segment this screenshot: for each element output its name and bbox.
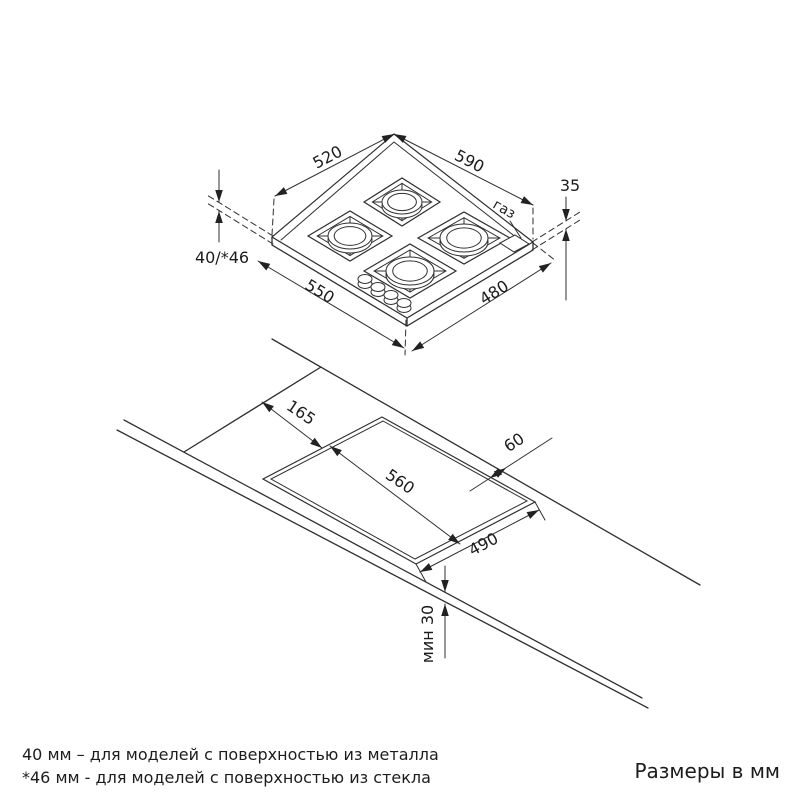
dimension-arrowhead [521, 196, 533, 205]
control-knob [384, 291, 398, 305]
dim-label-35: 35 [560, 176, 580, 195]
dimension-arrowhead [215, 211, 223, 223]
ext-left-top [207, 195, 273, 236]
control-knob [397, 299, 411, 313]
knob-top [358, 275, 372, 284]
burner-ring-inner [393, 261, 428, 281]
dimension-arrowhead [527, 510, 539, 519]
ext-480-right [533, 243, 556, 261]
dimension-arrowhead [539, 263, 551, 273]
burner-ring-inner [388, 193, 417, 210]
ext-right-top [532, 212, 580, 242]
installation-diagram: 520 590 550 480 35 40/*46 газ 165 560 60… [0, 0, 800, 800]
ext-right-bottom [532, 220, 580, 250]
control-knob [371, 283, 385, 297]
ext-left-bottom [207, 203, 273, 244]
dimension-arrowhead [441, 604, 449, 616]
worktop-view [117, 339, 700, 708]
knob-top [371, 283, 385, 292]
control-knob [358, 275, 372, 289]
dimension-arrowhead [412, 341, 424, 351]
dim-label-165: 165 [283, 396, 319, 429]
knob-top [397, 299, 411, 308]
dim-label-40-46: 40/*46 [195, 248, 249, 267]
burner-ring-inner [447, 228, 482, 248]
dim-label-550: 550 [302, 275, 338, 307]
units-note: Размеры в мм [634, 759, 780, 783]
ext-520 [272, 199, 274, 235]
footnotes: 40 мм – для моделей с поверхностью из ме… [22, 745, 780, 787]
dim-label-60: 60 [500, 429, 527, 456]
dimension-arrowhead [392, 339, 404, 348]
footnote-metal: 40 мм – для моделей с поверхностью из ме… [22, 745, 439, 764]
knob-top [384, 291, 398, 300]
dimension-arrowhead [562, 229, 570, 241]
dimension-arrowhead [310, 438, 322, 448]
dim-label-min30: мин 30 [418, 605, 437, 663]
dimension-arrowhead [262, 402, 274, 412]
burner-ring-inner [334, 227, 366, 246]
footnote-glass: *46 мм - для моделей с поверхностью из с… [22, 768, 431, 787]
dimension-arrowhead [258, 261, 270, 270]
dim-label-520: 520 [310, 142, 346, 173]
dimension-arrowhead [420, 563, 432, 572]
dim-label-590: 590 [452, 146, 488, 177]
dimension-arrowhead [215, 190, 223, 202]
dimension-arrowhead [275, 187, 287, 196]
technical-drawing-page: 520 590 550 480 35 40/*46 газ 165 560 60… [0, 0, 800, 800]
